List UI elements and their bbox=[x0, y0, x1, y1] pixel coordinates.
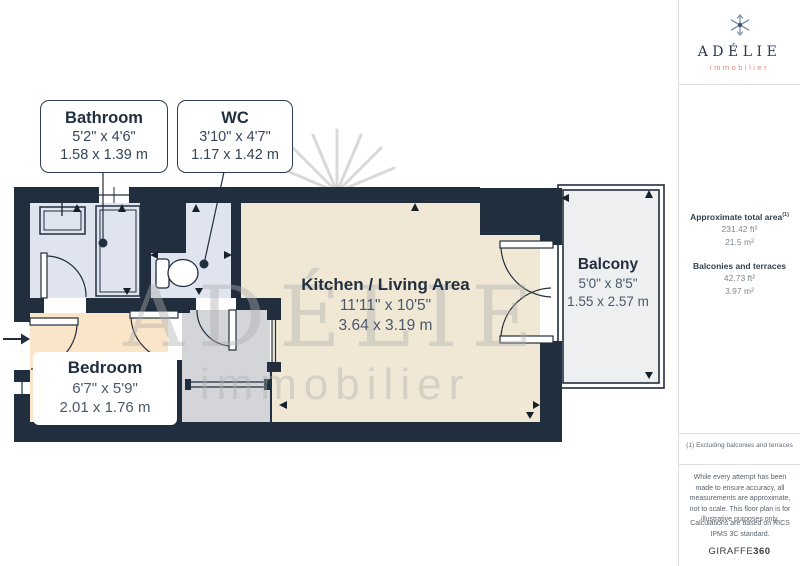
balcony-door-leaf-top bbox=[500, 241, 553, 248]
agency-name: ADÉLIE bbox=[679, 44, 800, 60]
bathroom-dim-metric: 1.58 x 1.39 m bbox=[43, 146, 165, 164]
balcony-door-leaf-bottom bbox=[500, 336, 553, 343]
balcony-label: Balcony 5'0" x 8'5" 1.55 x 2.57 m bbox=[556, 254, 660, 311]
toilet-bowl bbox=[168, 260, 198, 287]
wc-door-leaf bbox=[229, 310, 236, 350]
wc-dim-imperial: 3'10" x 4'7" bbox=[180, 128, 290, 146]
kitchen-living-label: Kitchen / Living Area 11'11" x 10'5" 3.6… bbox=[268, 274, 503, 336]
bedroom-door-leaf bbox=[130, 311, 178, 318]
kitchen-living-title: Kitchen / Living Area bbox=[268, 274, 503, 296]
total-area-metric: 21.5 m² bbox=[679, 236, 800, 250]
balconies-heading: Balconies and terraces bbox=[679, 260, 800, 272]
total-area-imperial: 231.42 ft² bbox=[679, 223, 800, 237]
wc-callout: WC 3'10" x 4'7" 1.17 x 1.42 m bbox=[177, 100, 293, 173]
agency-logo: ADÉLIE immobilier bbox=[679, 14, 800, 72]
bedroom-label: Bedroom 6'7" x 5'9" 2.01 x 1.76 m bbox=[33, 352, 177, 425]
bedroom-dim-metric: 2.01 x 1.76 m bbox=[33, 398, 177, 417]
sidebar-divider-3 bbox=[679, 464, 800, 465]
bathroom-title: Bathroom bbox=[43, 108, 165, 128]
hallway-floor bbox=[182, 310, 270, 422]
balconies-imperial: 42.73 ft² bbox=[679, 272, 800, 286]
kitchen-living-dim-metric: 3.64 x 3.19 m bbox=[268, 316, 503, 336]
balcony-title: Balcony bbox=[556, 254, 660, 275]
sidebar-divider-2 bbox=[679, 433, 800, 434]
total-area-heading: Approximate total area(1) bbox=[679, 209, 800, 223]
floorplan-page: ADÉLIE immobilier Bathroom 5'2" x 4'6" 1… bbox=[0, 0, 800, 566]
footnote-marker: (1) bbox=[782, 212, 789, 218]
bedroom-dim-imperial: 6'7" x 5'9" bbox=[33, 379, 177, 398]
bathroom-door-leaf bbox=[41, 253, 47, 298]
balcony-dim-metric: 1.55 x 2.57 m bbox=[556, 293, 660, 311]
area-footnote: (1) Excluding balconies and terraces bbox=[679, 442, 800, 449]
floor-plan: ADÉLIE immobilier Bathroom 5'2" x 4'6" 1… bbox=[0, 0, 678, 566]
standards-text: Calculations are based on RICS IPMS 3C s… bbox=[685, 519, 795, 540]
balconies-metric: 3.97 m² bbox=[679, 285, 800, 299]
entrance-door-leaf bbox=[30, 318, 78, 325]
sidebar-divider-1 bbox=[679, 84, 800, 85]
kitchen-living-dim-imperial: 11'11" x 10'5" bbox=[268, 296, 503, 316]
snowflake-icon bbox=[729, 14, 751, 36]
disclaimer-text: While every attempt has been made to ens… bbox=[685, 473, 795, 526]
balcony-dim-imperial: 5'0" x 8'5" bbox=[556, 275, 660, 293]
bathroom-dim-imperial: 5'2" x 4'6" bbox=[43, 128, 165, 146]
wc-title: WC bbox=[180, 108, 290, 128]
generator-brand: GIRAFFE360 bbox=[679, 546, 800, 557]
toilet-tank bbox=[156, 259, 169, 288]
info-sidebar: ADÉLIE immobilier Approximate total area… bbox=[678, 0, 800, 566]
bedroom-title: Bedroom bbox=[33, 357, 177, 379]
bathroom-callout: Bathroom 5'2" x 4'6" 1.58 x 1.39 m bbox=[40, 100, 168, 173]
agency-tagline: immobilier bbox=[679, 63, 800, 72]
entrance-arrow bbox=[3, 334, 30, 345]
area-summary: Approximate total area(1) 231.42 ft² 21.… bbox=[679, 209, 800, 299]
wc-dim-metric: 1.17 x 1.42 m bbox=[180, 146, 290, 164]
